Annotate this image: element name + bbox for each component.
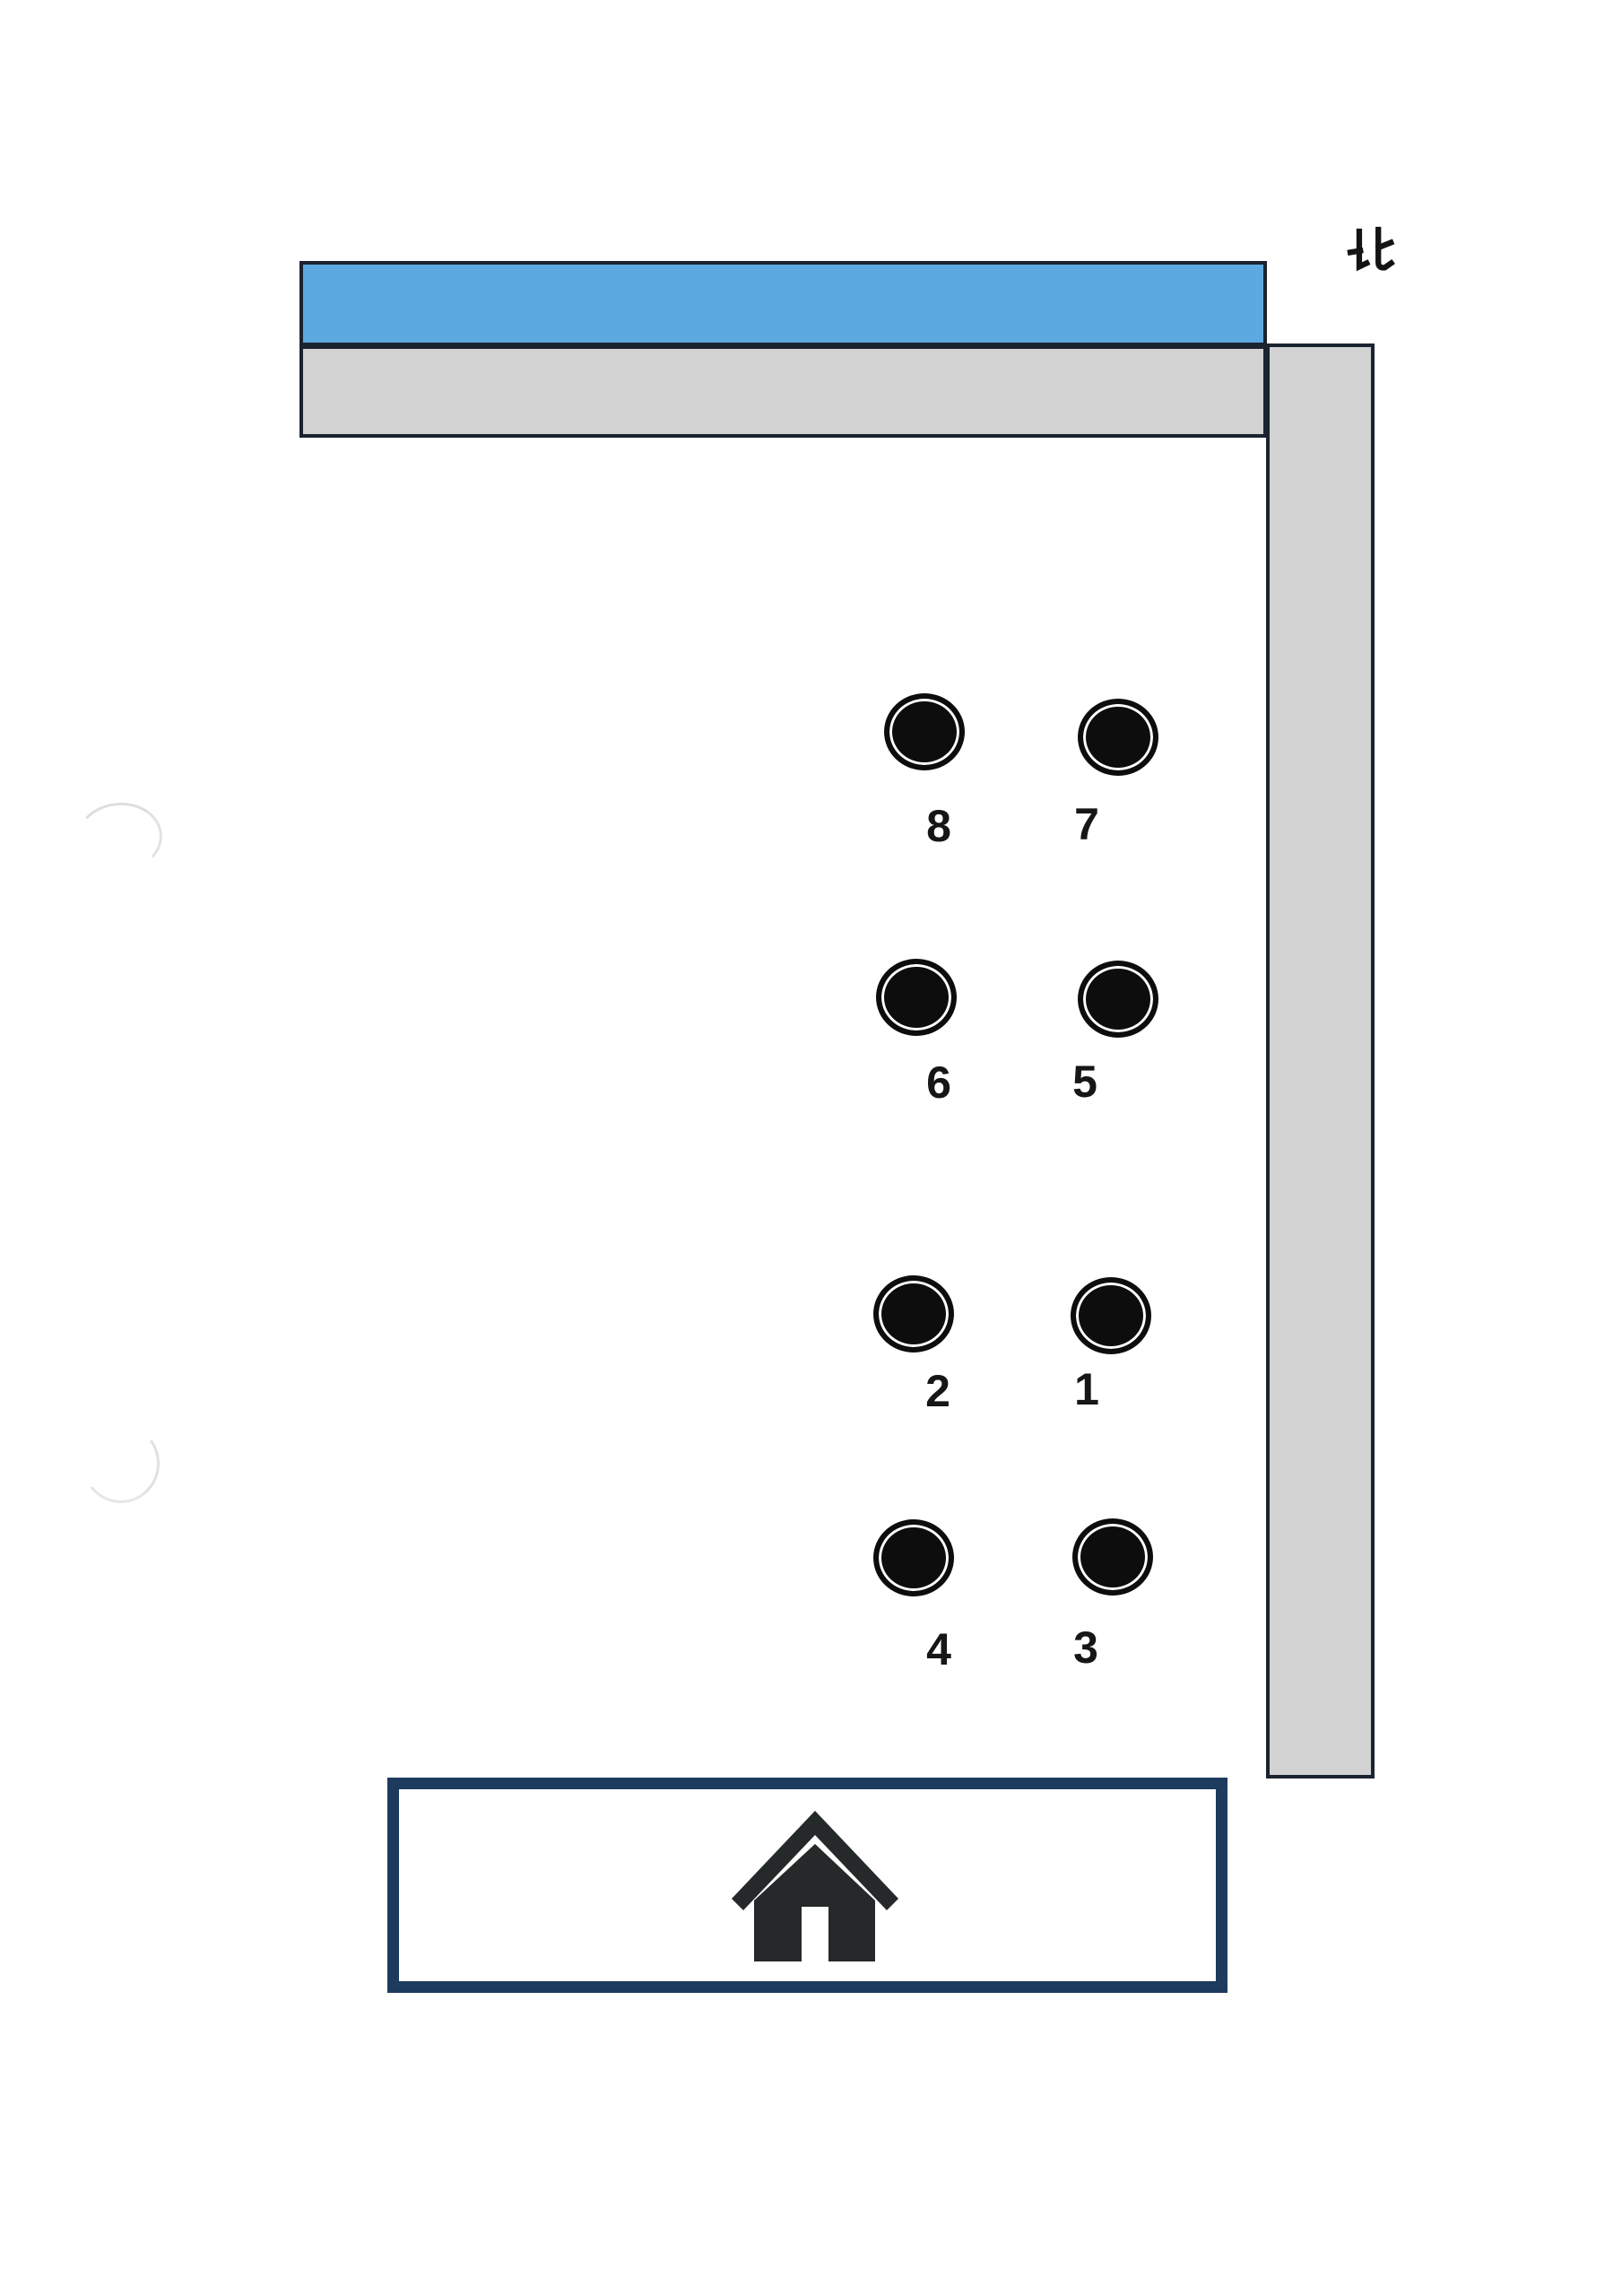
marker-circle-3 — [1072, 1518, 1153, 1596]
water-strip — [299, 261, 1267, 346]
marker-number: 8 — [926, 804, 951, 848]
scan-artifact-arc — [77, 1419, 164, 1508]
road-vertical — [1266, 344, 1375, 1779]
scanned-site-plan-page: 北 8 7 6 5 2 1 4 3 — [0, 0, 1622, 2296]
marker-number: 2 — [925, 1369, 950, 1413]
marker-number: 5 — [1072, 1059, 1097, 1104]
house-area-box — [387, 1778, 1227, 1993]
north-label: 北 — [1345, 224, 1397, 276]
marker-circle-6 — [876, 959, 957, 1036]
marker-circle-5 — [1078, 961, 1158, 1038]
marker-circle-4 — [873, 1519, 954, 1596]
marker-circle-7 — [1078, 699, 1158, 776]
road-horizontal — [299, 345, 1267, 438]
marker-number: 6 — [926, 1060, 951, 1105]
marker-number: 1 — [1074, 1367, 1099, 1412]
marker-circle-8 — [884, 693, 965, 770]
marker-number: 3 — [1073, 1625, 1098, 1670]
north-kanji-icon — [1345, 224, 1397, 276]
house-icon — [728, 1808, 900, 1962]
marker-circle-2 — [873, 1275, 954, 1352]
marker-number: 7 — [1074, 802, 1099, 847]
marker-number: 4 — [926, 1627, 951, 1672]
scan-artifact-arc — [73, 798, 166, 877]
marker-circle-1 — [1071, 1277, 1151, 1354]
